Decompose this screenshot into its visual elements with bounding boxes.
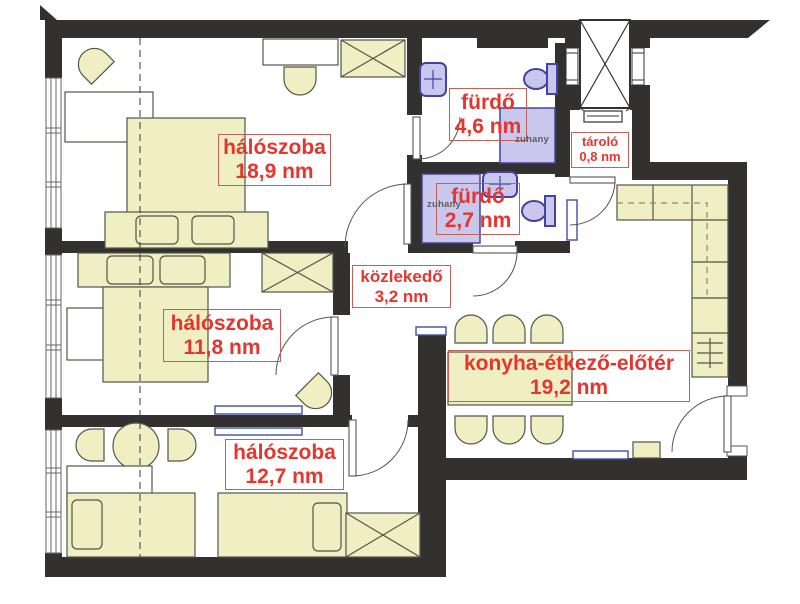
chair <box>455 416 487 444</box>
chair <box>531 315 563 343</box>
kitchen-counter <box>617 185 728 377</box>
shower-text: zuhany <box>427 199 461 210</box>
cabinet <box>633 442 660 458</box>
chair <box>493 315 525 343</box>
chair <box>72 42 114 84</box>
wall-chamfer-right <box>748 20 770 38</box>
room-area: 0,8 nm <box>579 150 620 165</box>
chair <box>168 429 196 461</box>
window-bedroom-1 <box>46 78 61 228</box>
chair <box>493 416 525 444</box>
chair <box>76 429 104 461</box>
room-name: fürdő <box>461 91 515 115</box>
room-label-storage: tároló 0,8 nm <box>571 132 629 168</box>
stove-icon <box>697 338 723 368</box>
pillow <box>107 256 153 284</box>
chair <box>455 315 487 343</box>
sink-icon <box>420 63 446 96</box>
door-bedroom-1 <box>345 184 411 247</box>
chair <box>531 416 563 444</box>
room-name: hálószoba <box>223 136 326 160</box>
chair <box>284 67 316 95</box>
door-bedroom-2 <box>276 317 338 375</box>
room-name: konyha-étkező-előtér <box>464 352 674 376</box>
pillow <box>313 503 341 551</box>
shower-label: zuhany <box>427 199 471 210</box>
wardrobe-icon <box>341 40 405 77</box>
toilet-icon <box>524 64 557 94</box>
shower-text: zuhany <box>515 134 549 145</box>
radiator <box>573 451 628 459</box>
shower-label: zuhany <box>505 134 549 145</box>
windows <box>46 78 61 553</box>
wall-chamfer-left <box>40 5 57 20</box>
room-area: 18,9 nm <box>235 160 313 184</box>
door-bathroom-2 <box>473 246 517 296</box>
room-label-bedroom-1: hálószoba 18,9 nm <box>218 134 331 186</box>
room-label-bedroom-2: hálószoba 11,8 nm <box>163 309 281 362</box>
door-bedroom-3 <box>349 420 408 476</box>
radiator <box>215 406 302 414</box>
room-area: 19,2 nm <box>530 376 608 400</box>
radiator <box>416 327 446 335</box>
wardrobe-icon <box>262 253 333 292</box>
radiator <box>215 428 302 435</box>
pillow <box>72 500 102 549</box>
room-name: tároló <box>582 135 618 150</box>
floorplan: hálószoba 18,9 nm fürdő 4,6 nm tároló 0,… <box>0 0 800 604</box>
radiator <box>567 200 577 240</box>
window-bedroom-2 <box>46 255 61 398</box>
bed-headboard <box>105 212 268 248</box>
room-name: közlekedő <box>360 267 442 286</box>
pillow <box>136 216 178 244</box>
room-area: 2,7 nm <box>445 209 512 233</box>
shaft-vent-left <box>566 48 578 85</box>
pillow <box>192 216 234 244</box>
room-label-bedroom-3: hálószoba 12,7 nm <box>225 439 344 490</box>
round-table <box>113 423 159 469</box>
room-area: 3,2 nm <box>375 287 429 306</box>
shaft-vent-right <box>632 48 644 85</box>
window-bedroom-3 <box>46 430 61 553</box>
room-area: 11,8 nm <box>183 336 260 360</box>
room-label-kitchen: konyha-étkező-előtér 19,2 nm <box>448 350 690 402</box>
room-area: 12,7 nm <box>245 465 323 489</box>
room-name: hálószoba <box>171 312 274 336</box>
pillow <box>160 256 205 284</box>
wardrobe-icon <box>346 513 420 557</box>
room-label-hallway: közlekedő 3,2 nm <box>352 265 451 308</box>
bed-headboard <box>78 253 230 287</box>
desk <box>263 39 338 65</box>
toilet-icon <box>522 196 555 226</box>
room-name: hálószoba <box>233 441 336 465</box>
